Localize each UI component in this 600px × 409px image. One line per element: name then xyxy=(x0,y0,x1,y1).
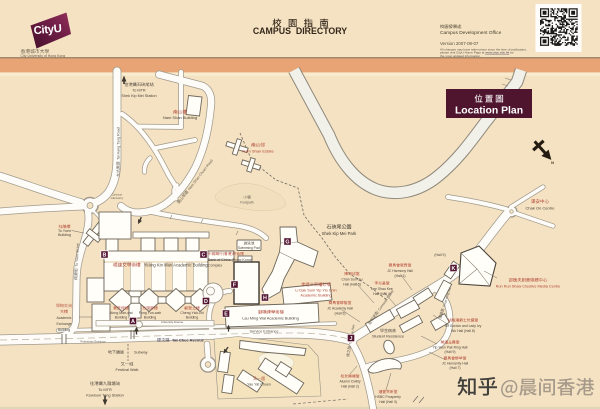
svg-text:Li Dak Sum Yip Yio Chin: Li Dak Sum Yip Yio Chin xyxy=(295,289,336,293)
svg-text:Building: Building xyxy=(58,233,71,237)
svg-text:CityU: CityU xyxy=(33,23,62,37)
svg-text:Subway: Subway xyxy=(134,351,148,355)
svg-text:(Hall 7): (Hall 7) xyxy=(450,366,461,370)
svg-text:Building: Building xyxy=(186,316,199,320)
svg-text:Laboratory: Laboratory xyxy=(111,196,124,200)
svg-text:(Hall 1): (Hall 1) xyxy=(395,274,406,278)
svg-text:(Hall 9): (Hall 9) xyxy=(445,350,456,354)
svg-text:Complex: Complex xyxy=(208,264,222,268)
svg-text:Version 2007-08-07: Version 2007-08-07 xyxy=(440,41,479,46)
svg-text:Lee Shau Kee: Lee Shau Kee xyxy=(371,287,393,291)
svg-text:Kowloon Tong Station: Kowloon Tong Station xyxy=(86,393,124,398)
svg-text:B: B xyxy=(103,253,107,259)
svg-text:E: E xyxy=(224,312,228,318)
svg-text:Cheng Yick-chi: Cheng Yick-chi xyxy=(180,311,204,315)
svg-text:Shek Kip Mei Park: Shek Kip Mei Park xyxy=(322,231,357,236)
svg-text:Yip Yuen Pak Ring Hall: Yip Yuen Pak Ring Hall xyxy=(433,346,468,350)
svg-text:H: H xyxy=(263,296,267,302)
svg-text:Nam Shan Estate: Nam Shan Estate xyxy=(242,149,274,154)
svg-text:Campus Development Office: Campus Development Office xyxy=(440,30,502,36)
svg-text:Run Run Shaw Creative Media Ce: Run Run Shaw Creative Media Centre xyxy=(496,285,561,289)
svg-text:Chak On Centre: Chak On Centre xyxy=(526,206,556,211)
svg-text:Service Entrance: Service Entrance xyxy=(250,330,279,334)
svg-text:To MTR: To MTR xyxy=(98,387,112,392)
svg-text:Tai Hang Tung Road: Tai Hang Tung Road xyxy=(117,127,121,160)
svg-text:Footpath: Footpath xyxy=(240,201,253,205)
svg-text:Shek Kip Mei Station: Shek Kip Mei Station xyxy=(121,94,156,98)
svg-text:HSBC Prosperity: HSBC Prosperity xyxy=(375,395,401,399)
svg-text:Swimming Pool: Swimming Pool xyxy=(238,246,260,250)
svg-text:Exchange: Exchange xyxy=(56,322,71,326)
svg-text:Yau Yat Chuen: Yau Yat Chuen xyxy=(247,383,271,387)
svg-text:G: G xyxy=(285,240,289,246)
svg-text:Wu Hall (Hall 8): Wu Hall (Hall 8) xyxy=(451,329,475,333)
svg-text:University Avenue: University Avenue xyxy=(161,320,184,324)
svg-text:Mong Man-wai: Mong Man-wai xyxy=(110,311,133,315)
svg-text:Building: Building xyxy=(58,328,70,332)
svg-text:Pedestrian Entrance: Pedestrian Entrance xyxy=(80,340,106,344)
svg-text:A: A xyxy=(131,319,135,325)
svg-text:Alumni Civility: Alumni Civility xyxy=(339,380,360,384)
svg-text:Chan Sui Kau: Chan Sui Kau xyxy=(342,278,363,282)
svg-text:(Hall 9): (Hall 9) xyxy=(434,253,445,257)
svg-text:JC Academy Hall: JC Academy Hall xyxy=(327,307,353,311)
svg-text:JC Harmony Hall: JC Harmony Hall xyxy=(387,269,413,273)
svg-text:CAMPUS DIRECTORY: CAMPUS DIRECTORY xyxy=(253,26,347,36)
svg-text:To MTR: To MTR xyxy=(132,89,146,93)
svg-text:Tat Chee Avenue: Tat Chee Avenue xyxy=(172,338,205,343)
svg-text:Nam Shan Building: Nam Shan Building xyxy=(163,115,197,120)
svg-text:D: D xyxy=(204,299,208,305)
svg-text:JC Humanity Hall: JC Humanity Hall xyxy=(442,362,468,366)
svg-text:Student Residence: Student Residence xyxy=(372,335,404,339)
svg-text:Hall (Hall 4): Hall (Hall 4) xyxy=(373,292,391,296)
svg-text:Bank of China (Hong Kong): Bank of China (Hong Kong) xyxy=(208,258,252,262)
svg-text:Festival Walk: Festival Walk xyxy=(116,367,139,372)
svg-text:K: K xyxy=(452,266,456,272)
svg-text:Yeung Kin Man Academic Buildin: Yeung Kin Man Academic Building xyxy=(144,263,208,268)
svg-text:Hall (Hall 5): Hall (Hall 5) xyxy=(343,283,361,287)
svg-text:Academic Building: Academic Building xyxy=(300,294,331,298)
svg-text:Hall (Hall 2): Hall (Hall 2) xyxy=(341,385,359,389)
svg-text:Building: Building xyxy=(144,316,157,320)
svg-text:J: J xyxy=(350,336,353,342)
svg-text:C: C xyxy=(202,253,206,259)
svg-text:Building: Building xyxy=(115,316,128,320)
svg-text:(Hall 6): (Hall 6) xyxy=(335,312,346,316)
svg-text:Hall (Hall 3): Hall (Hall 3) xyxy=(379,400,397,404)
svg-text:Sir Gordon and Lady Ivy: Sir Gordon and Lady Ivy xyxy=(445,324,482,328)
svg-text:Fong Yun-wah: Fong Yun-wah xyxy=(139,311,162,315)
svg-text:Location Plan: Location Plan xyxy=(455,105,523,116)
svg-text:Academic: Academic xyxy=(57,316,72,320)
svg-text:Lau Ming Wai Academic Building: Lau Ming Wai Academic Building xyxy=(242,315,299,320)
